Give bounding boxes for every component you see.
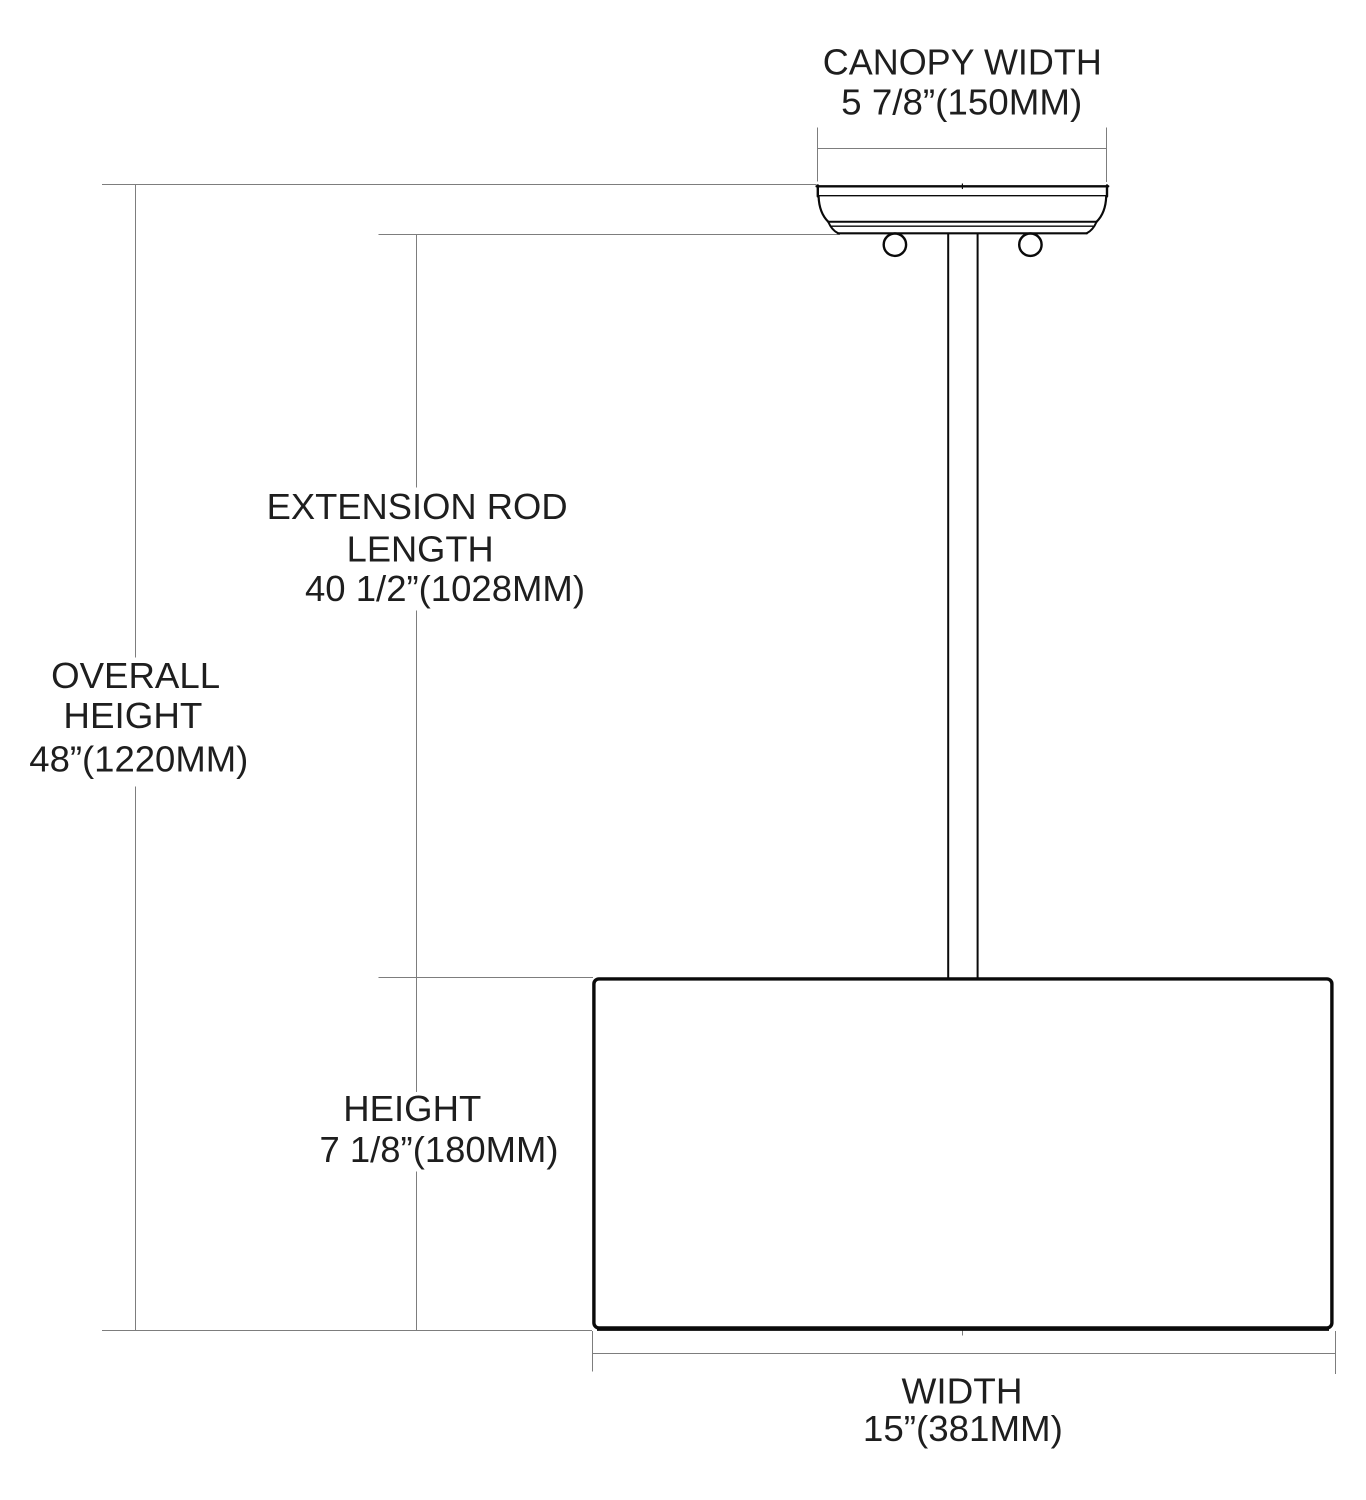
svg-text:EXTENSION ROD: EXTENSION ROD (267, 486, 568, 527)
svg-text:HEIGHT: HEIGHT (343, 1088, 481, 1129)
svg-text:40 1/2”(1028MM): 40 1/2”(1028MM) (305, 568, 585, 609)
svg-text:OVERALL: OVERALL (51, 655, 220, 696)
svg-text:15”(381MM): 15”(381MM) (863, 1408, 1063, 1449)
svg-text:WIDTH: WIDTH (902, 1370, 1023, 1411)
svg-text:HEIGHT: HEIGHT (63, 695, 202, 736)
svg-text:48”(1220MM): 48”(1220MM) (29, 739, 248, 780)
svg-text:5 7/8”(150MM): 5 7/8”(150MM) (841, 82, 1082, 123)
svg-text:LENGTH: LENGTH (347, 528, 494, 569)
svg-text:7 1/8”(180MM): 7 1/8”(180MM) (320, 1129, 559, 1170)
svg-text:CANOPY WIDTH: CANOPY WIDTH (823, 42, 1102, 83)
